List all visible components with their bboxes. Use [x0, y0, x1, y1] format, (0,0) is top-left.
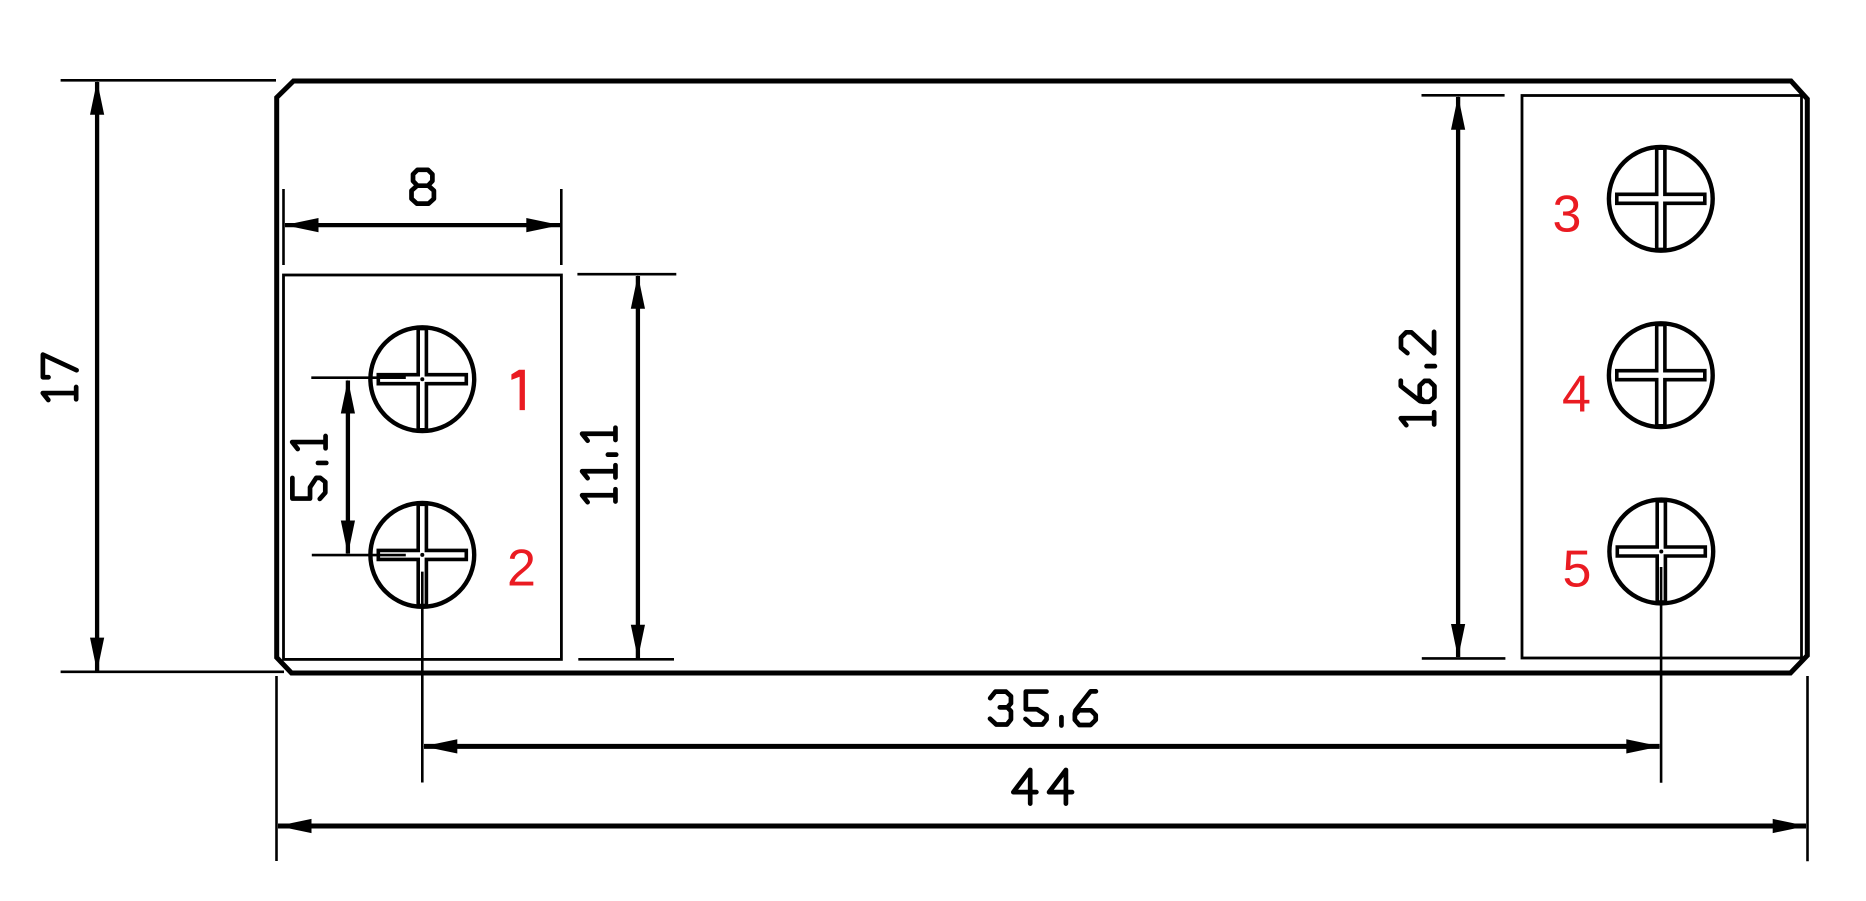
svg-text:2: 2	[507, 540, 536, 598]
svg-text:4: 4	[1562, 366, 1591, 424]
svg-text:5: 5	[1563, 540, 1592, 598]
svg-text:3: 3	[1553, 185, 1582, 243]
